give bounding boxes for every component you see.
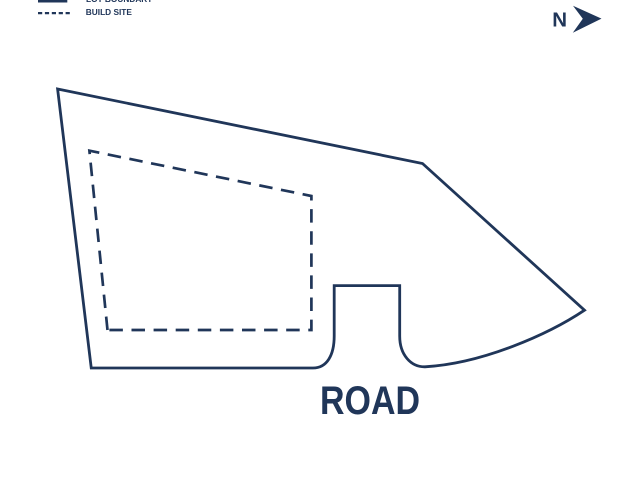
svg-text:ROAD: ROAD xyxy=(320,379,420,423)
svg-text:LOT BOUNDARY: LOT BOUNDARY xyxy=(86,0,153,4)
svg-text:BUILD SITE: BUILD SITE xyxy=(86,7,133,17)
svg-text:N: N xyxy=(552,8,567,31)
